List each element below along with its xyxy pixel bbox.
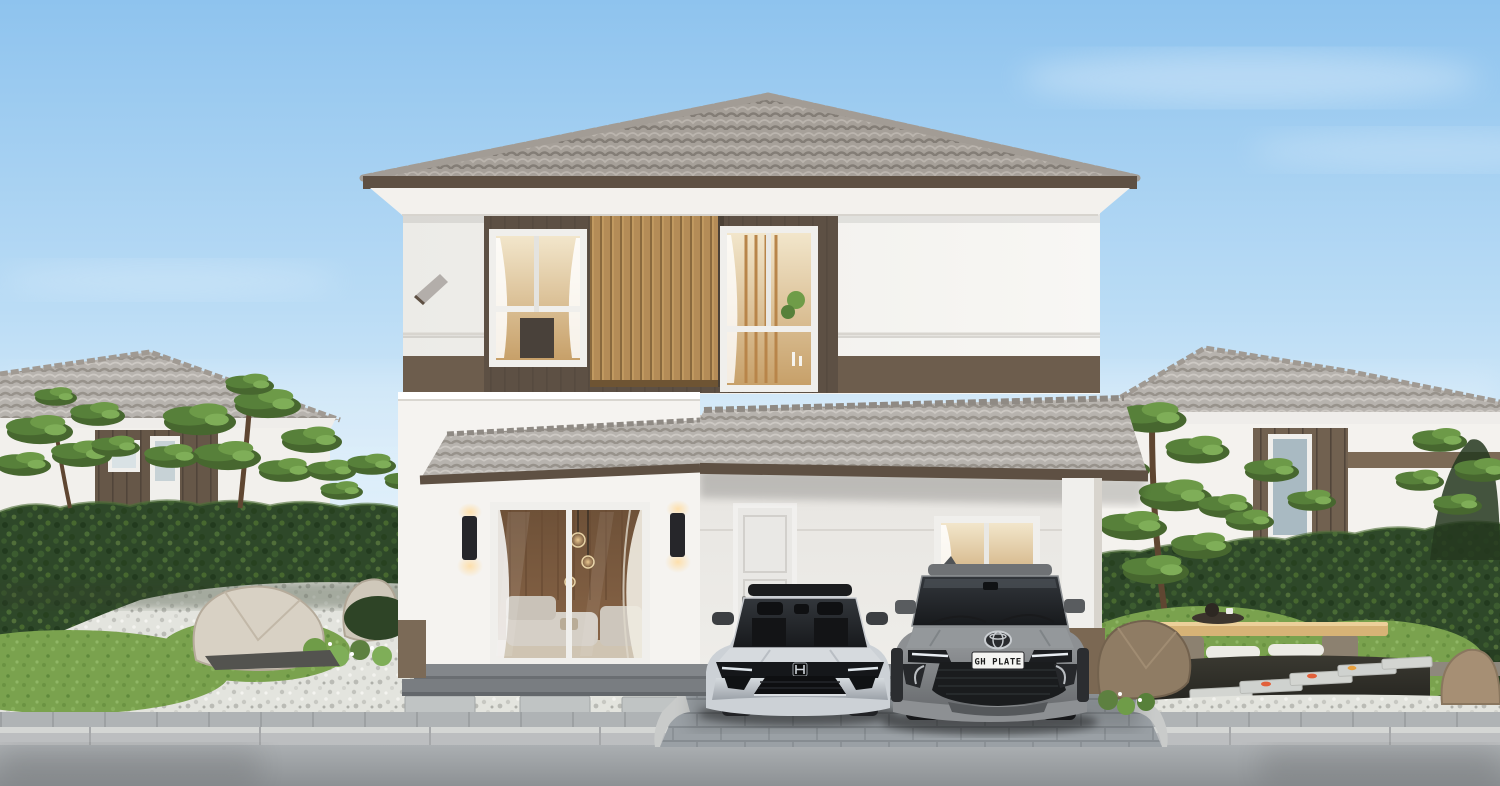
pendant-lights-part (571, 533, 585, 547)
sedan-headrests-part (817, 602, 843, 615)
groundcover-right-part (1138, 698, 1142, 702)
groundcover-part (370, 646, 374, 650)
window-upper-right-part (792, 352, 795, 366)
groundcover-right-part (1098, 690, 1118, 710)
honda-emblem (793, 663, 807, 676)
sliding-glass-door-part (566, 502, 572, 664)
pond-stepping-slabs-part (1382, 657, 1432, 670)
cushion-2 (1268, 644, 1324, 656)
sedan-hood (716, 648, 884, 664)
license-plate: GH PLATE (972, 652, 1024, 669)
mirror-left (895, 600, 916, 614)
toyota-emblem (985, 632, 1011, 649)
koi-fish-part (1348, 666, 1357, 670)
sedan-headrests-part (757, 602, 783, 615)
vignette-part (1260, 746, 1500, 786)
pine-tree-left-a-part (0, 452, 51, 476)
sedan-headrests-part (794, 604, 809, 614)
window-upper-left-part (520, 318, 554, 358)
step-slab-1 (405, 696, 475, 714)
groundcover-right-part (1137, 693, 1155, 711)
suv-license-plate-text: GH PLATE (974, 658, 1021, 668)
scene-svg: GH PLATE (0, 0, 1500, 786)
groundcover-right-part (1117, 697, 1135, 715)
wood-slat-panel-part (590, 380, 718, 387)
step-slab-2 (520, 696, 590, 714)
sedan-headrests-part (814, 618, 848, 646)
window-upper-right-part (766, 233, 771, 326)
suv-roof (928, 564, 1052, 576)
sliding-glass-door (490, 502, 650, 664)
groundcover-part (328, 642, 332, 646)
sedan-grille-lower (754, 676, 846, 694)
parapet-cap (398, 392, 700, 400)
sedan-roof (748, 584, 852, 596)
groundcover-part (350, 652, 354, 656)
sconce-left-part (462, 516, 477, 560)
window-upper-right-part (781, 305, 795, 319)
main-house-second-floor (403, 203, 1100, 394)
vignette-part (0, 746, 260, 786)
carport-roof (678, 398, 1148, 476)
window-upper-left-part (534, 236, 539, 312)
fender-left (891, 648, 903, 702)
window-upper-right-part (799, 356, 802, 366)
wood-slat-panel (590, 208, 724, 387)
neighbor-house-right-part (1273, 439, 1307, 535)
fender-right (1077, 648, 1089, 702)
sedan-headrests-part (752, 618, 786, 646)
mirror-right (866, 612, 888, 625)
cloud-1 (1020, 52, 1480, 104)
window-upper-right-part (727, 326, 811, 332)
porch-skirt (398, 620, 426, 678)
groundcover-right-part (1118, 692, 1122, 696)
mirror-right (1064, 599, 1085, 613)
sconce-right-part (670, 513, 685, 557)
wood-slat-panel-part (590, 208, 718, 387)
koi-fish-part (1261, 682, 1271, 687)
pendant-lights-part (582, 556, 594, 568)
window-upper-left (489, 229, 587, 367)
tea-set-part (1192, 612, 1244, 624)
eave-fascia-brown (363, 176, 1137, 189)
groundcover-part (350, 640, 370, 660)
mirror-left (712, 612, 734, 625)
groundcover-part (372, 646, 392, 666)
render-canvas: GH PLATE (0, 0, 1500, 786)
cloud-3 (0, 262, 340, 298)
window-upper-right (720, 226, 818, 392)
soffit (370, 188, 1130, 215)
rearview-mirror (983, 582, 998, 590)
koi-fish-part (1307, 674, 1317, 679)
tea-set-part (1226, 608, 1233, 614)
tea-set-part (1205, 603, 1219, 617)
